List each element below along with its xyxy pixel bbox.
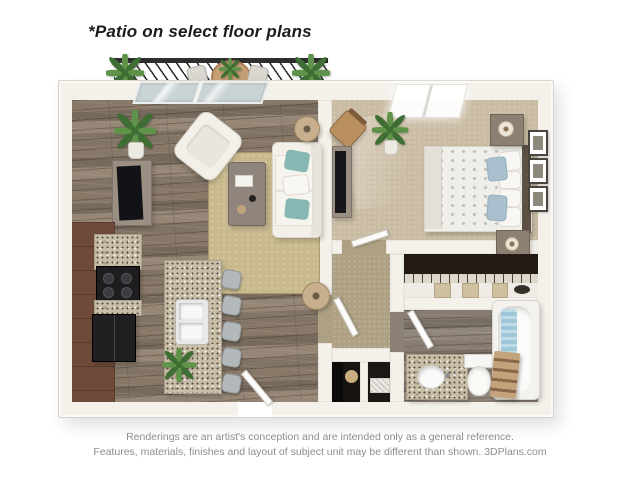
- vanity-sink: [417, 365, 445, 389]
- teal-pillow: [283, 149, 310, 173]
- storage-box: [434, 283, 451, 298]
- burner: [121, 273, 132, 284]
- wall-living-hall-lower: [318, 343, 332, 402]
- kitchen-counter: [94, 234, 142, 270]
- coffee-table-bowl: [237, 205, 246, 214]
- double-sink: [175, 299, 209, 345]
- laundry-closet: [332, 362, 360, 402]
- floor-lamp: [302, 282, 330, 310]
- wall-art: [528, 158, 548, 184]
- blue-pillow: [486, 194, 508, 221]
- bar-stool: [220, 372, 242, 394]
- bar-stool: [220, 320, 242, 342]
- bathroom-vanity: [406, 354, 468, 400]
- wall-hall-bath-lower: [390, 352, 404, 402]
- refrigerator: [92, 314, 136, 362]
- white-pillow: [282, 174, 310, 197]
- closet-upper-shadow: [404, 254, 538, 274]
- bar-stool: [220, 346, 242, 368]
- armchair-cushion: [184, 122, 232, 170]
- blue-towel: [501, 309, 517, 355]
- bedroom-tv-console: [332, 146, 352, 218]
- closet-shelf: [404, 283, 538, 297]
- burner: [103, 287, 114, 298]
- glass-reflection: [135, 83, 267, 102]
- bar-stool: [220, 294, 242, 316]
- sink-basin: [179, 323, 203, 340]
- tv-console: [112, 160, 152, 226]
- bed: [424, 146, 532, 232]
- bedroom-plant-pot: [384, 140, 398, 155]
- sink-basin: [179, 303, 203, 320]
- table-lamp: [505, 237, 519, 251]
- wall-art: [528, 130, 548, 156]
- floor-lamp: [294, 116, 320, 142]
- woven-basket: [370, 378, 390, 393]
- nightstand: [490, 114, 524, 146]
- burner: [121, 287, 132, 298]
- sofa: [272, 142, 322, 238]
- laundry-basket: [345, 370, 358, 383]
- patio-note: *Patio on select floor plans: [88, 22, 312, 42]
- stove: [96, 266, 140, 304]
- wall-art: [528, 186, 548, 212]
- storage-box: [492, 283, 508, 298]
- wall-bedroom-bottom-left: [332, 240, 342, 254]
- blanket-fold: [425, 147, 442, 229]
- island-plant-icon: [162, 348, 196, 382]
- laundry-shelving: [332, 362, 343, 402]
- teal-pillow: [284, 198, 310, 220]
- patio-table-plant-icon: [219, 58, 241, 80]
- bedroom-television: [335, 151, 346, 213]
- fridge-door-seam: [114, 315, 115, 361]
- coffee-table-decor: [249, 195, 256, 202]
- storage-closet: [368, 362, 390, 402]
- burner: [103, 273, 114, 284]
- wall-hall-closet: [390, 254, 404, 312]
- towel-ladder: [490, 351, 521, 399]
- floorplan-rendering: *Patio on select floor plans: [0, 0, 640, 480]
- bar-stool: [220, 268, 242, 290]
- disclaimer-line-2: Features, materials, finishes and layout…: [0, 445, 640, 460]
- faucet: [445, 373, 450, 378]
- laundry-divider-wall: [360, 362, 368, 402]
- storage-basket: [514, 285, 530, 294]
- wall-laundry-front: [332, 348, 390, 362]
- table-lamp: [498, 121, 514, 137]
- sliding-glass-door: [132, 81, 269, 104]
- toilet-bowl: [467, 366, 491, 396]
- television: [117, 165, 144, 220]
- disclaimer: Renderings are an artist's conception an…: [0, 430, 640, 460]
- living-room-plant-pot: [128, 142, 144, 159]
- bath-door-threshold: [390, 312, 404, 352]
- closet-hanging-clothes: [404, 274, 538, 283]
- storage-box: [462, 283, 479, 298]
- blue-pillow: [486, 156, 508, 182]
- disclaimer-line-1: Renderings are an artist's conception an…: [0, 430, 640, 445]
- coffee-table-books: [235, 175, 253, 187]
- coffee-table: [228, 162, 266, 226]
